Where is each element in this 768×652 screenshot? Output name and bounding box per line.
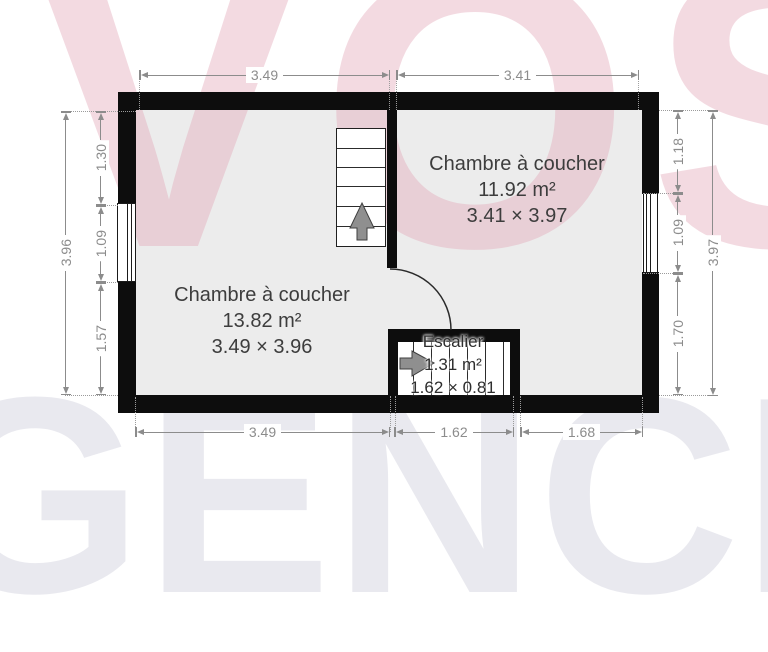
dimension-top-right: 3.41 [396, 68, 639, 82]
dimension-bottom-left: 3.49 [135, 425, 390, 439]
dimension-value: 3.49 [246, 67, 283, 83]
window-pane [127, 204, 128, 281]
room-name: Escalier [378, 330, 528, 353]
dimension-value: 1.30 [93, 140, 109, 175]
dimension-value: 1.57 [93, 321, 109, 356]
dimension-left-1: 1.30 [93, 111, 108, 205]
room-size: 1.62 × 0.81 [378, 376, 528, 399]
dimension-value: 3.41 [499, 67, 536, 83]
room-size: 3.41 × 3.97 [395, 203, 639, 229]
window-pane [131, 204, 132, 281]
room-size: 3.49 × 3.96 [136, 334, 388, 360]
wall-right-upper [642, 92, 659, 194]
window-left [117, 203, 136, 282]
room-label-staircase: Escalier 1.31 m² 1.62 × 0.81 [378, 330, 528, 399]
stair-tread [337, 167, 385, 168]
room-area: 1.31 m² [378, 353, 528, 376]
room-label-bedroom-right: Chambre à coucher 11.92 m² 3.41 × 3.97 [395, 151, 639, 229]
dimension-value: 1.62 [435, 424, 472, 440]
room-label-bedroom-left: Chambre à coucher 13.82 m² 3.49 × 3.96 [136, 282, 388, 360]
dimension-value: 3.97 [705, 235, 721, 270]
dimension-value: 1.68 [563, 424, 600, 440]
dimension-right-outer: 3.97 [705, 110, 720, 396]
extension-line [390, 396, 391, 432]
dimension-value: 1.70 [670, 316, 686, 351]
dimension-bottom-middle: 1.62 [394, 425, 514, 439]
dimension-right-1: 1.18 [670, 110, 685, 193]
dimension-bottom-right: 1.68 [520, 425, 643, 439]
dimension-value: 1.18 [670, 134, 686, 169]
dimension-right-3: 1.70 [670, 273, 685, 395]
dimension-left-outer: 3.96 [58, 111, 73, 395]
extension-line [65, 395, 118, 396]
wall-right-lower [642, 272, 659, 413]
dimension-value: 1.09 [670, 215, 686, 250]
window-pane [650, 194, 651, 272]
room-area: 11.92 m² [395, 177, 639, 203]
window-pane [646, 194, 647, 272]
staircase-upper [336, 128, 386, 247]
dimension-value: 1.09 [93, 226, 109, 261]
dimension-left-2: 1.09 [93, 205, 108, 282]
stair-tread [337, 206, 385, 207]
window-right [643, 193, 658, 273]
wall-left-upper [118, 92, 136, 205]
room-area: 13.82 m² [136, 308, 388, 334]
room-name: Chambre à coucher [395, 151, 639, 177]
stair-tread [337, 226, 385, 227]
dimension-left-3: 1.57 [93, 282, 108, 395]
stair-tread [337, 186, 385, 187]
floor-plan: VOS GENCI Chambre à c [0, 0, 768, 526]
dimension-top-left: 3.49 [139, 68, 390, 82]
dimension-right-2: 1.09 [670, 193, 685, 273]
dimension-value: 3.96 [58, 235, 74, 270]
wall-left-lower [118, 282, 136, 413]
room-name: Chambre à coucher [136, 282, 388, 308]
dimension-value: 3.49 [244, 424, 281, 440]
stair-tread [337, 148, 385, 149]
